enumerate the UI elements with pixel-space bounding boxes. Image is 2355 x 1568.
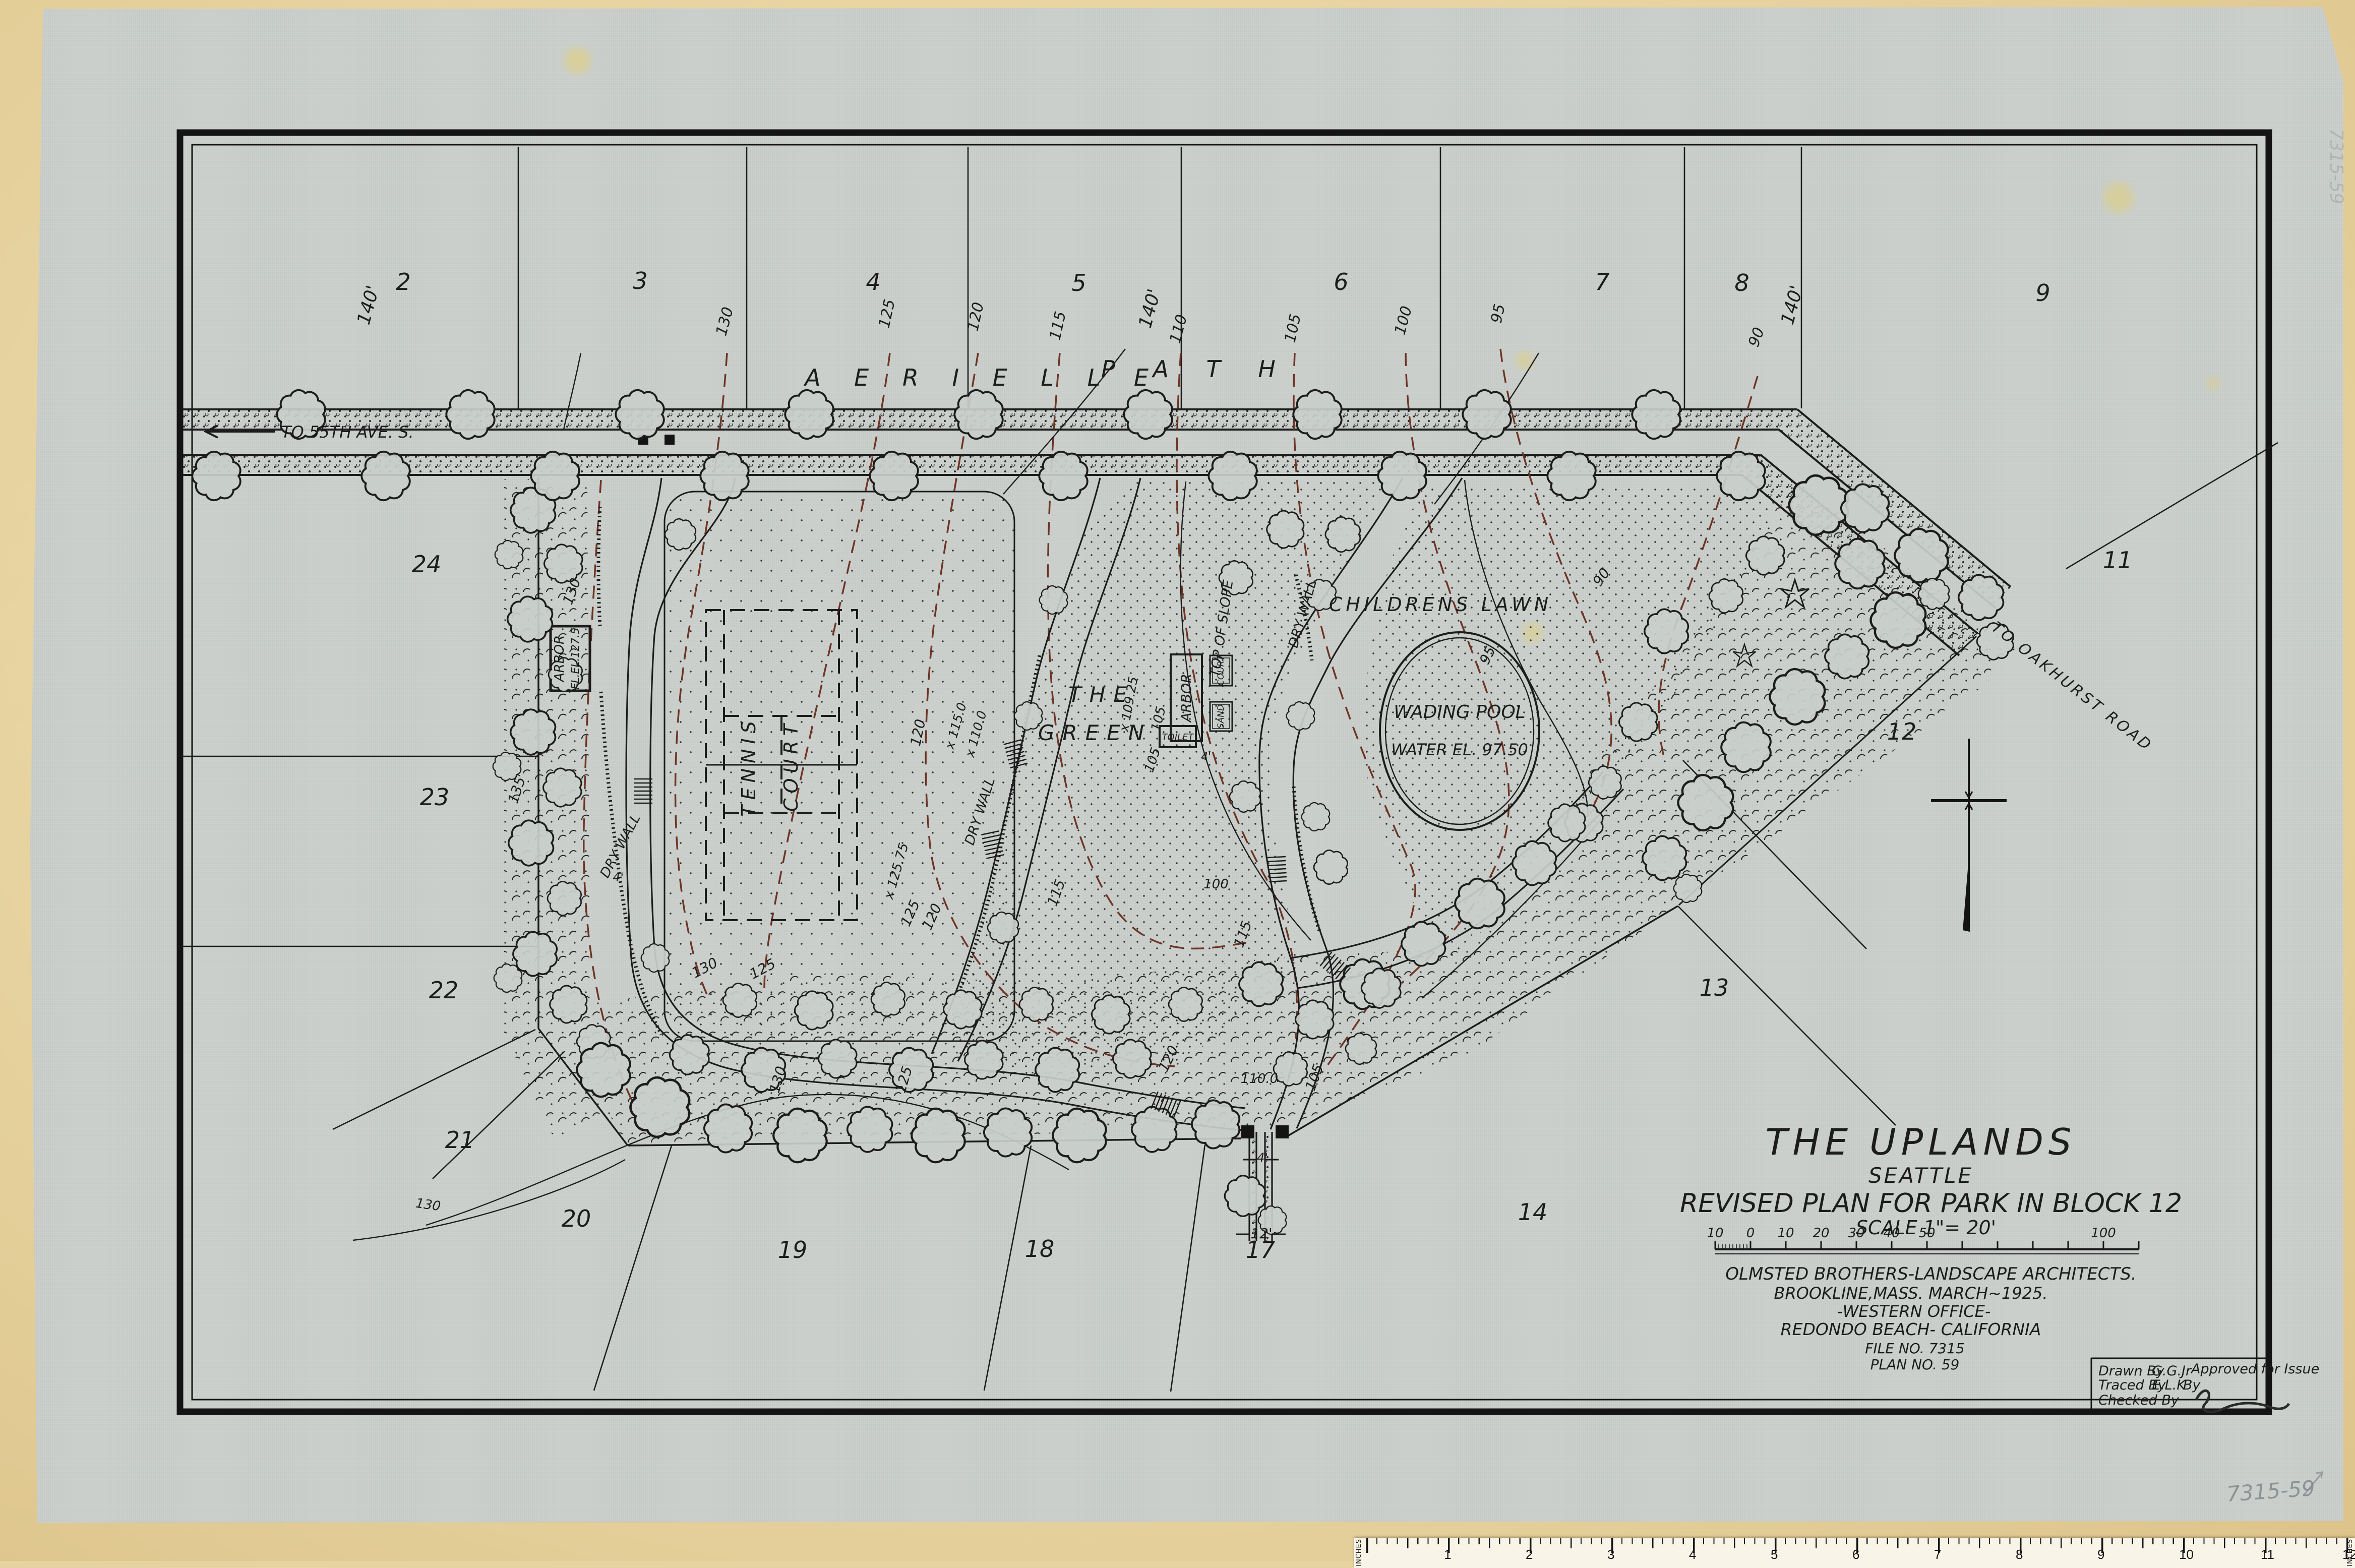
lot-number: 21: [445, 1126, 475, 1154]
the-green-label-2: GREEN: [1038, 720, 1152, 745]
planting-and-lawn-fills: [183, 409, 2017, 1241]
lot-number: 24: [412, 551, 442, 578]
scanned-plan-photo: { "colors": {"mat":"#e7d3a0","sheet":"#c…: [0, 0, 2355, 1561]
map-label: 100: [1203, 877, 1229, 892]
ruler-number: 5: [1771, 1547, 1778, 1562]
tree-icon: [1113, 1040, 1151, 1078]
tree-icon: [509, 820, 554, 866]
map-label: 130: [414, 1196, 441, 1215]
photo-ruler: INCHES INCHES 123456789101112: [1354, 1538, 2355, 1568]
tree-icon: [1302, 803, 1330, 831]
tree-icon: [1895, 529, 1948, 582]
lot-number: 20: [562, 1205, 591, 1232]
plan-title: THE UPLANDS: [1766, 1121, 2077, 1163]
lot-number: 13: [1700, 974, 1729, 1001]
tree-icon: [1293, 390, 1341, 439]
tree-icon: [1918, 578, 1949, 610]
map-label: 100: [1392, 304, 1416, 336]
tree-icon: [1361, 969, 1401, 1008]
tree-icon: [577, 1043, 630, 1097]
scale-bar-number: 50: [1918, 1226, 1935, 1241]
tree-icon: [723, 983, 757, 1017]
lot-number: 18: [1025, 1235, 1055, 1262]
street-name-path: P A T H: [1101, 355, 1291, 383]
lot-number: 4: [866, 268, 880, 295]
map-label: 140': [1135, 287, 1165, 331]
map-label: 130: [713, 305, 738, 337]
lot-number: 14: [1518, 1198, 1548, 1226]
tree-icon: [1789, 475, 1848, 535]
tree-icon: [508, 596, 553, 642]
map-label: 110: [1167, 313, 1191, 345]
map-label: 90: [1745, 325, 1768, 349]
map-label: 140': [1777, 283, 1807, 327]
tree-icon: [1019, 987, 1053, 1021]
scale-bar-number: 10: [1777, 1226, 1794, 1241]
tree-icon: [1959, 575, 2004, 620]
pencil-annotations: 7315-59 7315-59: [2226, 129, 2346, 1506]
tree-icon: [1039, 452, 1087, 500]
court-label: COURT: [780, 719, 802, 812]
tree-icon: [773, 1109, 826, 1162]
tree-icon: [785, 390, 833, 439]
tree-icon: [494, 964, 522, 992]
plan-no: PLAN NO. 59: [1870, 1356, 1960, 1373]
tree-icon: [1871, 592, 1926, 648]
tree-icon: [1632, 390, 1680, 439]
map-label: 110.0: [1241, 1071, 1278, 1087]
western-office: -WESTERN OFFICE-: [1837, 1302, 1991, 1321]
toilet-label: TOILET: [1162, 732, 1195, 743]
tree-icon: [1645, 609, 1688, 653]
tree-icon: [1325, 517, 1360, 552]
map-label: 115: [1047, 310, 1070, 341]
tree-icon: [1547, 452, 1595, 500]
tree-icon: [513, 932, 557, 976]
ruler-number: 11: [2261, 1547, 2274, 1562]
tree-icon: [870, 452, 918, 500]
scale-bar-number: 0: [1746, 1226, 1755, 1241]
tree-icon: [954, 390, 1002, 439]
ruler-number: 4: [1689, 1547, 1696, 1562]
traced-by-value: E.L.K: [2152, 1377, 2187, 1393]
tree-icon: [1092, 995, 1129, 1034]
tree-icon: [1124, 390, 1172, 439]
sand-box-label: SAND: [1216, 704, 1226, 729]
tree-icon: [1295, 1000, 1333, 1039]
map-label: 95: [1488, 303, 1509, 325]
tree-icon: [704, 1104, 752, 1152]
approved-label: Approved for Issue: [2190, 1361, 2319, 1377]
lot-number: 3: [633, 267, 647, 294]
tree-icon: [1230, 781, 1260, 812]
tree-icon: [1209, 452, 1256, 500]
tree-icon: [964, 1041, 1002, 1079]
lot-number: 7: [1595, 268, 1609, 295]
tree-icon: [446, 390, 494, 439]
tree-icon: [1717, 452, 1765, 500]
map-label: 4': [1201, 751, 1211, 763]
approved-by-label: By: [2183, 1377, 2201, 1393]
scale-bar-number: 20: [1813, 1226, 1829, 1241]
tree-icon: [1770, 669, 1825, 725]
ruler-number: 6: [1852, 1547, 1859, 1562]
tree-icon: [1169, 987, 1202, 1021]
tree-icon: [665, 519, 696, 550]
water-el-label: WATER EL. 97.50: [1391, 740, 1528, 759]
checked-by-label: Checked By: [2098, 1393, 2180, 1408]
pencil-edge-number: 7315-59: [2326, 129, 2346, 204]
tree-icon: [848, 1107, 892, 1152]
ruler-number: 8: [2016, 1547, 2023, 1562]
stamp-box: Drawn By G.G.Jr Approved for Issue Trace…: [2091, 1358, 2319, 1412]
lot-number: 5: [1071, 269, 1086, 296]
tree-icon: [1132, 1107, 1177, 1152]
scale-bar-number: 10: [1707, 1226, 1723, 1241]
tree-icon: [1287, 702, 1315, 730]
scale-bar-number: 30: [1848, 1226, 1864, 1241]
arbor-east-label: ARBOR: [1179, 674, 1194, 723]
tree-icon: [1036, 1048, 1079, 1092]
scale-bar-number: 40: [1883, 1226, 1900, 1241]
tree-icon: [1835, 539, 1885, 589]
tree-icon: [495, 540, 523, 569]
tree-icon: [1463, 390, 1511, 439]
tree-icon: [1674, 874, 1702, 902]
tree-icon: [1040, 586, 1068, 614]
tree-icon: [1825, 634, 1869, 678]
tree-icon: [1455, 879, 1504, 929]
drawn-by-value: G.G.Jr: [2152, 1363, 2192, 1379]
tree-icon: [548, 881, 581, 915]
ruler-number: 12: [2342, 1547, 2355, 1562]
tree-icon: [670, 1035, 709, 1074]
tree-icon: [1274, 1052, 1307, 1085]
ruler-number: 9: [2097, 1547, 2104, 1562]
tree-icon: [1643, 836, 1686, 880]
tree-icon: [1267, 511, 1304, 548]
arbor-west-label: ARBOR: [552, 635, 567, 683]
tree-icon: [543, 768, 581, 807]
lot-number: 22: [429, 977, 459, 1004]
ruler-unit-left: INCHES: [1355, 1539, 1363, 1566]
tree-icon: [1548, 804, 1585, 841]
tree-icon: [361, 452, 409, 500]
lot-number: 9: [2035, 279, 2050, 307]
ruler-number: 7: [1934, 1547, 1941, 1562]
tree-icon: [1678, 775, 1733, 830]
file-no: FILE NO. 7315: [1865, 1340, 1964, 1357]
tree-icon: [1402, 922, 1445, 966]
ruler-number: 2: [1526, 1547, 1533, 1562]
tree-icon: [988, 912, 1018, 943]
lot-number: 8: [1734, 269, 1749, 296]
tree-icon: [1053, 1109, 1106, 1162]
to-oakhurst-label: TO OAKHURST ROAD: [1988, 619, 2156, 755]
map-label: 140': [353, 283, 384, 327]
map-label: 105: [1282, 312, 1305, 344]
title-block: THE UPLANDS SEATTLE REVISED PLAN FOR PAR…: [1680, 1121, 2182, 1373]
plan-subtitle: REVISED PLAN FOR PARK IN BLOCK 12: [1680, 1188, 2182, 1219]
lot-number: 6: [1334, 268, 1348, 295]
tree-icon: [641, 944, 670, 972]
scale-bar-number: 100: [2091, 1226, 2116, 1241]
tree-icon: [544, 545, 582, 583]
wading-pool-label: WADING POOL: [1394, 702, 1525, 722]
tree-icon: [1721, 722, 1771, 772]
plan-city: SEATTLE: [1868, 1163, 1973, 1188]
lot-number: 19: [778, 1236, 808, 1263]
to-55th-ave-label: TO 55TH AVE. S.: [281, 423, 414, 442]
tree-icon: [984, 1108, 1032, 1156]
tree-icon: [1746, 536, 1784, 575]
pencil-catalog-number: 7315-59: [2226, 1476, 2316, 1506]
map-label: 125: [876, 297, 899, 329]
north-arrow: [1931, 739, 2007, 932]
tree-icon: [700, 452, 748, 500]
lot-number: 11: [2103, 547, 2133, 574]
childrens-lawn-label: CHILDRENS LAWN: [1329, 593, 1552, 616]
tree-icon: [531, 452, 579, 500]
tree-icon: [631, 1077, 690, 1137]
tree-icon: [616, 390, 663, 439]
tree-icon: [1346, 1033, 1376, 1064]
tree-icon: [818, 1040, 856, 1078]
scale-bar: [1715, 1241, 2139, 1254]
lot-number: 2: [396, 268, 410, 295]
map-label: 12': [1250, 1225, 1272, 1242]
tree-icon: [1314, 850, 1348, 884]
tree-icon: [550, 986, 587, 1023]
ruler-number: 10: [2179, 1547, 2194, 1562]
tree-icon: [795, 991, 832, 1030]
tree-icon: [1239, 962, 1283, 1006]
tree-icon: [1225, 1176, 1265, 1217]
ruler-number: 3: [1607, 1547, 1614, 1562]
tree-icon: [1192, 1100, 1239, 1148]
lot-number: 23: [420, 783, 450, 811]
tree-icon: [1619, 703, 1657, 741]
ruler-number: 1: [1444, 1547, 1451, 1562]
plan-drawing: A E R I E L L E P A T H TO 55TH AVE. S. …: [0, 0, 2355, 1561]
tree-icon: [871, 982, 905, 1016]
tree-icon: [192, 452, 240, 500]
redondo-beach: REDONDO BEACH- CALIFORNIA: [1781, 1319, 2041, 1339]
tree-icon: [1589, 766, 1621, 799]
tree-icon: [1378, 452, 1426, 500]
office-line: BROOKLINE,MASS. MARCH~1925.: [1774, 1284, 2047, 1303]
map-label: 4': [1257, 1151, 1268, 1165]
tree-icon: [511, 709, 556, 755]
tree-icon: [1841, 484, 1889, 532]
lot-number: 12: [1887, 718, 1917, 745]
arbor-west-el-label: FL.EL.127.5: [569, 628, 581, 689]
tree-icon: [943, 990, 981, 1029]
tennis-label: TENNIS: [738, 716, 760, 816]
tree-icon: [912, 1109, 964, 1162]
tree-icon: [1513, 841, 1556, 885]
tree-icon: [1709, 579, 1743, 613]
firm-name: OLMSTED BROTHERS-LANDSCAPE ARCHITECTS.: [1725, 1264, 2136, 1284]
